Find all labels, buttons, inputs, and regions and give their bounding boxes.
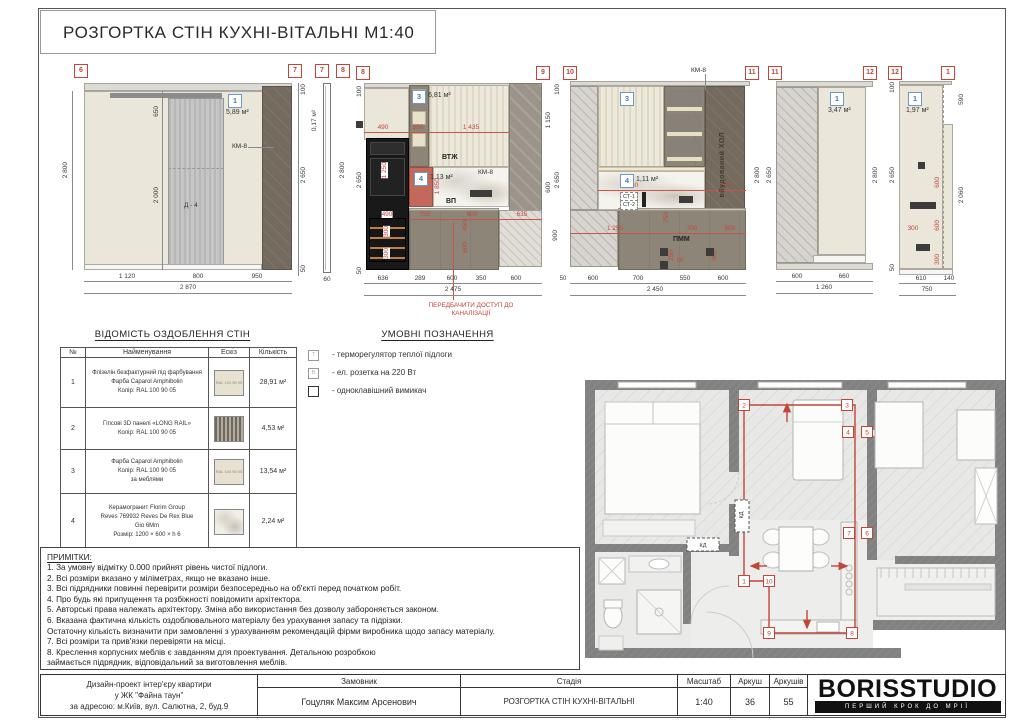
kd-label: КД (739, 511, 745, 518)
dim: 100 (554, 84, 561, 95)
dim: 650 (153, 106, 160, 117)
area-label: 1,97 м² (906, 107, 929, 114)
elevation-12-1: 12 1 1 1,97 м² 600 600 300 300 100 2 650… (886, 62, 1008, 312)
customer-name: Гоцуляк Максим Арсенович (258, 688, 460, 715)
notes-block: ПРИМІТКИ: 1. За умовну відмітку 0.000 пр… (40, 547, 580, 670)
dim: 250 (668, 250, 675, 261)
sofa (793, 400, 843, 480)
dim: 2 650 (356, 172, 363, 188)
note-line: 7. Всі розміри та прив'язки перевіряти н… (47, 637, 573, 648)
dim: 450 (462, 220, 469, 231)
finish-table-title: ВІДОМІСТЬ ОЗДОБЛЕННЯ СТІН (60, 329, 285, 340)
plan-marker: 5 (865, 430, 869, 437)
page-title: РОЗГОРТКА СТІН КУХНІ-ВІТАЛЬНІ М1:40 (40, 10, 436, 54)
dim: 50 (356, 267, 363, 274)
plan-marker: 10 (765, 579, 773, 586)
area-label: 5,89 м² (226, 109, 249, 116)
area-label: 1,11 м² (636, 176, 658, 183)
socket-icon: В (308, 368, 319, 379)
dim: 635 (517, 211, 528, 218)
note-line: 8. Креслення корпусних меблів є завдання… (47, 648, 573, 659)
dim: 550 (680, 275, 691, 282)
finish-sketch: RAL 100 90 05 (209, 450, 250, 494)
dim-total: 750 (922, 286, 933, 293)
dim: 289 (415, 275, 426, 282)
kd-label: КД (700, 543, 707, 549)
dim: 500 (725, 225, 736, 232)
door-label: Д - 4 (184, 202, 198, 209)
note-line: 6. Вказана фактична кількість оздоблювал… (47, 616, 573, 627)
sketch-swatch (214, 416, 244, 442)
dim: 1 850 (434, 178, 441, 194)
wall-marker: 11 (745, 66, 759, 80)
project-line: за адресою: м.Київ, вул. Салютна, 2, буд… (41, 701, 257, 712)
dim: 100 (356, 86, 363, 97)
legend-item-label: - терморегулятор теплої підлоги (332, 350, 452, 359)
finish-name: Флізелін безфактурний під фарбування Фар… (86, 358, 209, 408)
area-label: 3,47 м² (828, 107, 851, 114)
dim: 700 (633, 275, 644, 282)
elevation-7-8: 7 8 0,17 м² 2 800 60 (315, 62, 357, 312)
table-header-row: № Найменування Ескіз Кількість (61, 348, 297, 358)
wall-marker: 9 (536, 66, 550, 80)
finish-badge: 4 (414, 172, 428, 186)
finish-badge: 1 (830, 92, 844, 106)
finish-name: Керамогранит Florim Group Reves 769932 R… (86, 494, 209, 550)
scale-label: Масштаб (678, 675, 730, 688)
notes-title: ПРИМІТКИ: (47, 552, 573, 562)
dim-total: 2 475 (445, 286, 461, 293)
thermostat-icon: Т (308, 350, 319, 361)
wall-marker: 11 (768, 66, 782, 80)
table-row: 2 Гіпсові 3D панелі «LONG RAIL» Колір: R… (61, 408, 297, 450)
dim: 2 060 (958, 187, 965, 203)
note-line: 4. Про будь які припущення та розбіжност… (47, 595, 573, 606)
dim: 2 800 (754, 167, 761, 183)
dim: 550 (413, 124, 424, 131)
legend-item-label: - ел. розетка на 220 Вт (332, 368, 416, 377)
sheets-total: 55 (770, 688, 807, 715)
dim: 600 (545, 182, 552, 193)
dim-total: 1 260 (816, 284, 832, 291)
sheet-number: 36 (731, 688, 769, 715)
dim: 636 (378, 275, 389, 282)
finish-qty: 13,54 м² (250, 450, 297, 494)
col-header: Ескіз (209, 348, 250, 358)
plan-marker: 7 (847, 531, 851, 538)
wall-marker: 6 (74, 64, 88, 78)
row-num: 2 (61, 408, 86, 450)
drawing-sheet: РОЗГОРТКА СТІН КУХНІ-ВІТАЛЬНІ М1:40 6 7 … (0, 0, 1024, 724)
fridge-label: вбудований ХОЛ (719, 132, 726, 197)
plan-marker: 1 (742, 579, 746, 586)
dim: 600 (792, 273, 803, 280)
table-row: 4 Керамогранит Florim Group Reves 769932… (61, 494, 297, 550)
col-header: № (61, 348, 86, 358)
legend: Т - терморегулятор теплої підлоги В - ел… (300, 348, 580, 408)
legend-item-label: - одноклавішний вимикач (332, 386, 426, 395)
col-header: Кількість (250, 348, 297, 358)
dim-total: 2 870 (180, 284, 196, 291)
customer-cell: Замовник Гоцуляк Максим Арсенович (258, 675, 461, 715)
kitchen-counter-bottom (761, 620, 857, 634)
km8-annotation: КМ-8 (478, 169, 493, 176)
dim: 1 250 (381, 162, 388, 178)
finish-qty: 2,24 м² (250, 494, 297, 550)
wall-marker: 7 (288, 64, 302, 78)
stage-value: РОЗГОРТКА СТІН КУХНІ-ВІТАЛЬНІ (461, 688, 677, 715)
sheets-label: Аркушів (770, 675, 807, 688)
dim: 100 (889, 82, 896, 93)
km8-annotation: КМ-8 (232, 143, 247, 150)
dim: 50 (677, 258, 684, 264)
dim: 800 (193, 273, 204, 280)
wall-marker: 7 (315, 64, 329, 78)
wall-marker: 8 (336, 64, 350, 78)
dim: 600 (934, 220, 941, 231)
finish-badge: 1 (228, 94, 242, 108)
plan-marker: 3 (845, 403, 849, 410)
sketch-swatch: RAL 100 90 05 (214, 370, 244, 396)
dim: 300 (383, 226, 390, 237)
project-info-cell: Дизайн-проект інтер'єру квартири у ЖК "Ф… (41, 675, 258, 715)
dim: 2 800 (872, 167, 879, 183)
dim: 750 (663, 212, 670, 223)
plan-marker: 6 (865, 531, 869, 538)
dim: 300 (908, 225, 919, 232)
project-line: у ЖК "Файна таун" (41, 690, 257, 701)
sheet-label: Аркуш (731, 675, 769, 688)
dim: 900 (552, 230, 559, 241)
hall-floor (691, 550, 751, 654)
finish-badge: 4 (620, 174, 634, 188)
dim: 490 (382, 211, 393, 218)
dim: 350 (476, 275, 487, 282)
dining-table (779, 527, 813, 571)
dim: 600 (462, 242, 469, 253)
dim: 700 (687, 225, 698, 232)
dim: 600 (511, 275, 522, 282)
studio-logo: BORISSTUDIO ПЕРШИЙ КРОК ДО МРІЇ (808, 675, 1007, 715)
wall-marker: 8 (356, 66, 370, 80)
finish-qty: 4,53 м² (250, 408, 297, 450)
km8-annotation: КМ-8 (691, 67, 706, 74)
finish-sketch (209, 408, 250, 450)
customer-label: Замовник (258, 675, 460, 688)
plan-marker: 2 (742, 403, 746, 410)
finish-name: Фарба Caparol Amphibolin Колір: RAL 100 … (86, 450, 209, 494)
dishwasher-label: ПММ (673, 236, 690, 243)
finish-table: № Найменування Ескіз Кількість 1 Флізелі… (60, 347, 297, 550)
finish-badge: 3 (620, 92, 634, 106)
scale-value: 1:40 (678, 688, 730, 715)
note-line: 5. Авторські права належать архітектору.… (47, 605, 573, 616)
dim: 2 650 (554, 172, 561, 188)
note-line: 3. Всі підрядники повинні перевірити роз… (47, 584, 573, 595)
finish-badge: 3 (412, 90, 426, 104)
hood-label: ВТЖ (442, 154, 458, 161)
finish-name: Гіпсові 3D панелі «LONG RAIL» Колір: RAL… (86, 408, 209, 450)
dim: 2 650 (300, 167, 307, 183)
dim: 600 (447, 275, 458, 282)
dim: 2 800 (62, 162, 69, 178)
dim: 50 (300, 265, 307, 272)
dim: 2 000 (153, 187, 160, 203)
note-line: Остаточну кількість визначити при замовл… (47, 627, 573, 638)
row-num: 4 (61, 494, 86, 550)
sheet-cell: Аркуш 36 (731, 675, 770, 715)
col-header: Найменування (86, 348, 209, 358)
dim: 600 (934, 177, 941, 188)
stage-cell: Стадія РОЗГОРТКА СТІН КУХНІ-ВІТАЛЬНІ (461, 675, 678, 715)
elevation-11-12: 11 12 1 3,47 м² 2 650 2 800 600 660 1 26… (766, 62, 884, 312)
plan-marker: 4 (846, 430, 850, 437)
dim: 590 (958, 94, 965, 105)
scale-cell: Масштаб 1:40 (678, 675, 731, 715)
vp-label: ВП (446, 198, 456, 205)
area-label: 6,81 м² (428, 92, 451, 99)
dim: 950 (252, 273, 263, 280)
wall-marker: 12 (863, 66, 877, 80)
project-line: Дизайн-проект інтер'єру квартири (41, 679, 257, 690)
dim: 600 (467, 211, 478, 218)
dim: 50 (560, 276, 567, 282)
elevation-10-11: 10 11 КМ-8 вбудований ХОЛ 3 4 1,11 м² 1 … (560, 62, 765, 312)
note-line: займається підрядник, відповідальний за … (47, 658, 573, 669)
dim: 610 (916, 275, 927, 282)
logo-tagline: ПЕРШИЙ КРОК ДО МРІЇ (815, 701, 1001, 713)
table-row: 3 Фарба Caparol Amphibolin Колір: RAL 10… (61, 450, 297, 494)
sketch-swatch (214, 509, 244, 535)
area-label: 0,17 м² (311, 110, 318, 131)
sewage-note: КАНАЛІЗАЦІЇ (452, 310, 491, 317)
sheets-cell: Аркушів 55 (770, 675, 808, 715)
row-num: 3 (61, 450, 86, 494)
dim: 1 120 (119, 273, 135, 280)
dim: 1 250 (607, 225, 623, 232)
wall-marker: 1 (941, 66, 955, 80)
logo-text: BORISSTUDIO (818, 677, 997, 701)
dim: 490 (378, 124, 389, 131)
legend-title: УМОВНІ ПОЗНАЧЕННЯ (300, 329, 575, 340)
dim: 1 150 (545, 112, 552, 128)
table-row: 1 Флізелін безфактурний під фарбування Ф… (61, 358, 297, 408)
dim: 60 (323, 276, 330, 283)
wall-marker: 12 (888, 66, 902, 80)
title-block: Дизайн-проект інтер'єру квартири у ЖК "Ф… (40, 674, 1006, 716)
dim: 1 435 (463, 124, 479, 131)
dim: 300 (934, 254, 941, 265)
st2-label: СТ-2 (620, 200, 638, 210)
finish-sketch: RAL 100 90 05 (209, 358, 250, 408)
dim: 2 650 (766, 167, 773, 183)
dim-total: 2 450 (647, 286, 663, 293)
dim: 50 (889, 264, 896, 271)
dim: 100 (300, 84, 307, 95)
switch-icon (308, 386, 319, 397)
dim: 2 800 (339, 162, 346, 178)
dim: 600 (718, 275, 729, 282)
dim: 660 (839, 273, 850, 280)
row-num: 1 (61, 358, 86, 408)
elevation-8-9: 8 9 1 250 490 300 300 3 6,81 м² 490 550 … (356, 62, 561, 322)
bed-right (875, 402, 923, 468)
plan-marker: 8 (850, 631, 854, 638)
wall-marker: 10 (563, 66, 577, 80)
dim: 300 (383, 248, 390, 259)
dim: 750 (420, 211, 431, 218)
sewage-note: ПЕРЕДБАЧИТИ ДОСТУП ДО (429, 302, 514, 309)
stage-label: Стадія (461, 675, 677, 688)
note-line: 1. За умовну відмітку 0.000 прийнят ріве… (47, 563, 573, 574)
note-line: 2. Всі розміри вказано у міліметрах, якщ… (47, 574, 573, 585)
dim: 140 (944, 275, 955, 282)
finish-qty: 28,91 м² (250, 358, 297, 408)
floor-plan: КД КД 2 3 4 5 7 6 1 10 9 8 (583, 372, 1007, 672)
sketch-swatch: RAL 100 90 05 (214, 459, 244, 485)
desk (957, 410, 995, 460)
dim: 2 650 (889, 167, 896, 183)
finish-badge: 1 (908, 92, 922, 106)
elevation-6-7: 6 7 Д - 4 1 5,89 м² КМ-8 2 800 650 2 000… (60, 62, 312, 312)
finish-sketch (209, 494, 250, 550)
dim: 600 (588, 275, 599, 282)
plan-marker: 9 (767, 631, 771, 638)
